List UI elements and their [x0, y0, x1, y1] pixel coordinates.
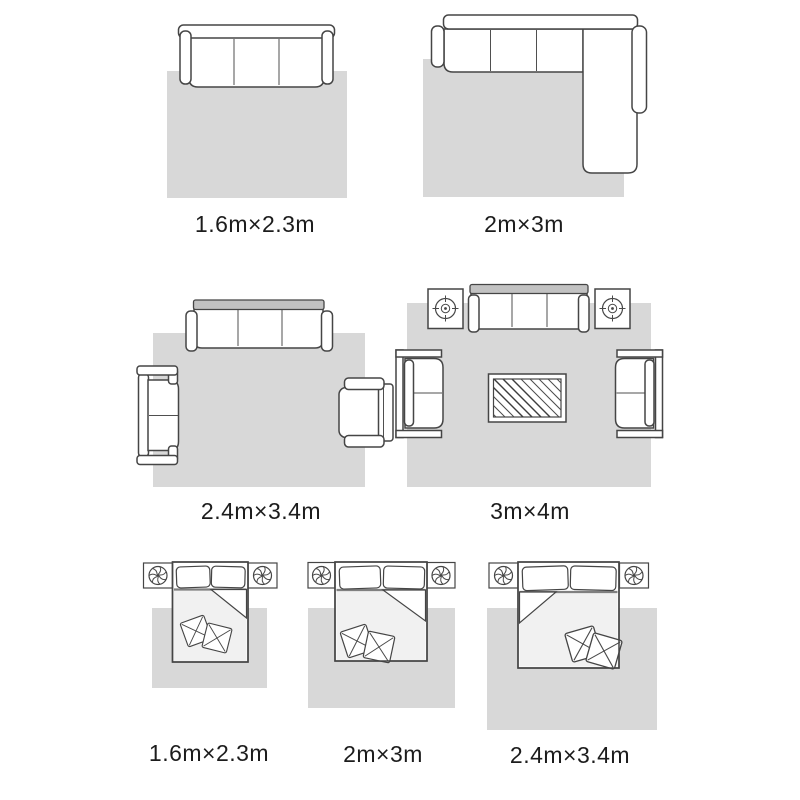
nightstand-icon: [144, 563, 173, 588]
plant-icon: [625, 567, 643, 585]
rug-swatch: [153, 333, 365, 487]
diagram-l-shaped-sofa: [423, 15, 647, 197]
loveseat-icon: [396, 350, 443, 438]
side-table-icon: [595, 289, 630, 329]
nightstand-icon: [620, 563, 649, 588]
throw-cushion-icon: [202, 623, 232, 653]
diagram-living-room-small: [137, 300, 393, 487]
pillow-icon: [522, 566, 568, 591]
rug-swatch: [167, 71, 347, 198]
diagram-bedroom-medium: [308, 562, 455, 708]
size-label: 1.6m×2.3m: [195, 212, 315, 237]
rug-size-guide: 1.6m×2.3m 2m×3m 2.4m×3.4m 3m×4m 1.6m×2.3…: [0, 0, 800, 800]
nightstand-icon: [427, 563, 455, 589]
plant-icon: [312, 567, 330, 585]
bed-icon: [335, 562, 427, 663]
size-label: 1.6m×2.3m: [149, 741, 269, 766]
size-label: 2m×3m: [484, 212, 564, 237]
plant-icon: [253, 567, 271, 585]
bed-icon: [173, 562, 249, 662]
diagram-living-room-large: [396, 285, 663, 488]
loveseat-icon: [616, 350, 663, 438]
size-label: 3m×4m: [490, 499, 570, 524]
side-table-icon: [428, 289, 463, 329]
size-label: 2.4m×3.4m: [201, 499, 321, 524]
sofa-icon: [179, 25, 335, 87]
diagram-bedroom-large: [487, 562, 657, 730]
sofa-icon: [469, 285, 590, 333]
nightstand-icon: [308, 563, 335, 589]
diagram-bedroom-small: [144, 562, 278, 688]
diagram-three-seat-sofa: [167, 25, 347, 198]
throw-cushion-icon: [363, 631, 395, 663]
plant-icon: [494, 567, 512, 585]
nightstand-icon: [489, 563, 518, 588]
pillow-icon: [570, 566, 616, 591]
sofa-icon: [186, 300, 333, 351]
pillow-icon: [339, 566, 381, 589]
nightstand-icon: [248, 563, 277, 588]
armchair-icon: [339, 378, 393, 447]
pillow-icon: [176, 566, 210, 588]
size-label: 2m×3m: [343, 742, 423, 767]
pillow-icon: [211, 566, 245, 588]
loveseat-icon: [137, 366, 179, 465]
size-label: 2.4m×3.4m: [510, 743, 630, 768]
bed-icon: [518, 562, 622, 669]
diagrams-svg: [0, 0, 800, 800]
plant-icon: [149, 567, 167, 585]
pillow-icon: [383, 566, 425, 589]
plant-icon: [432, 567, 450, 585]
